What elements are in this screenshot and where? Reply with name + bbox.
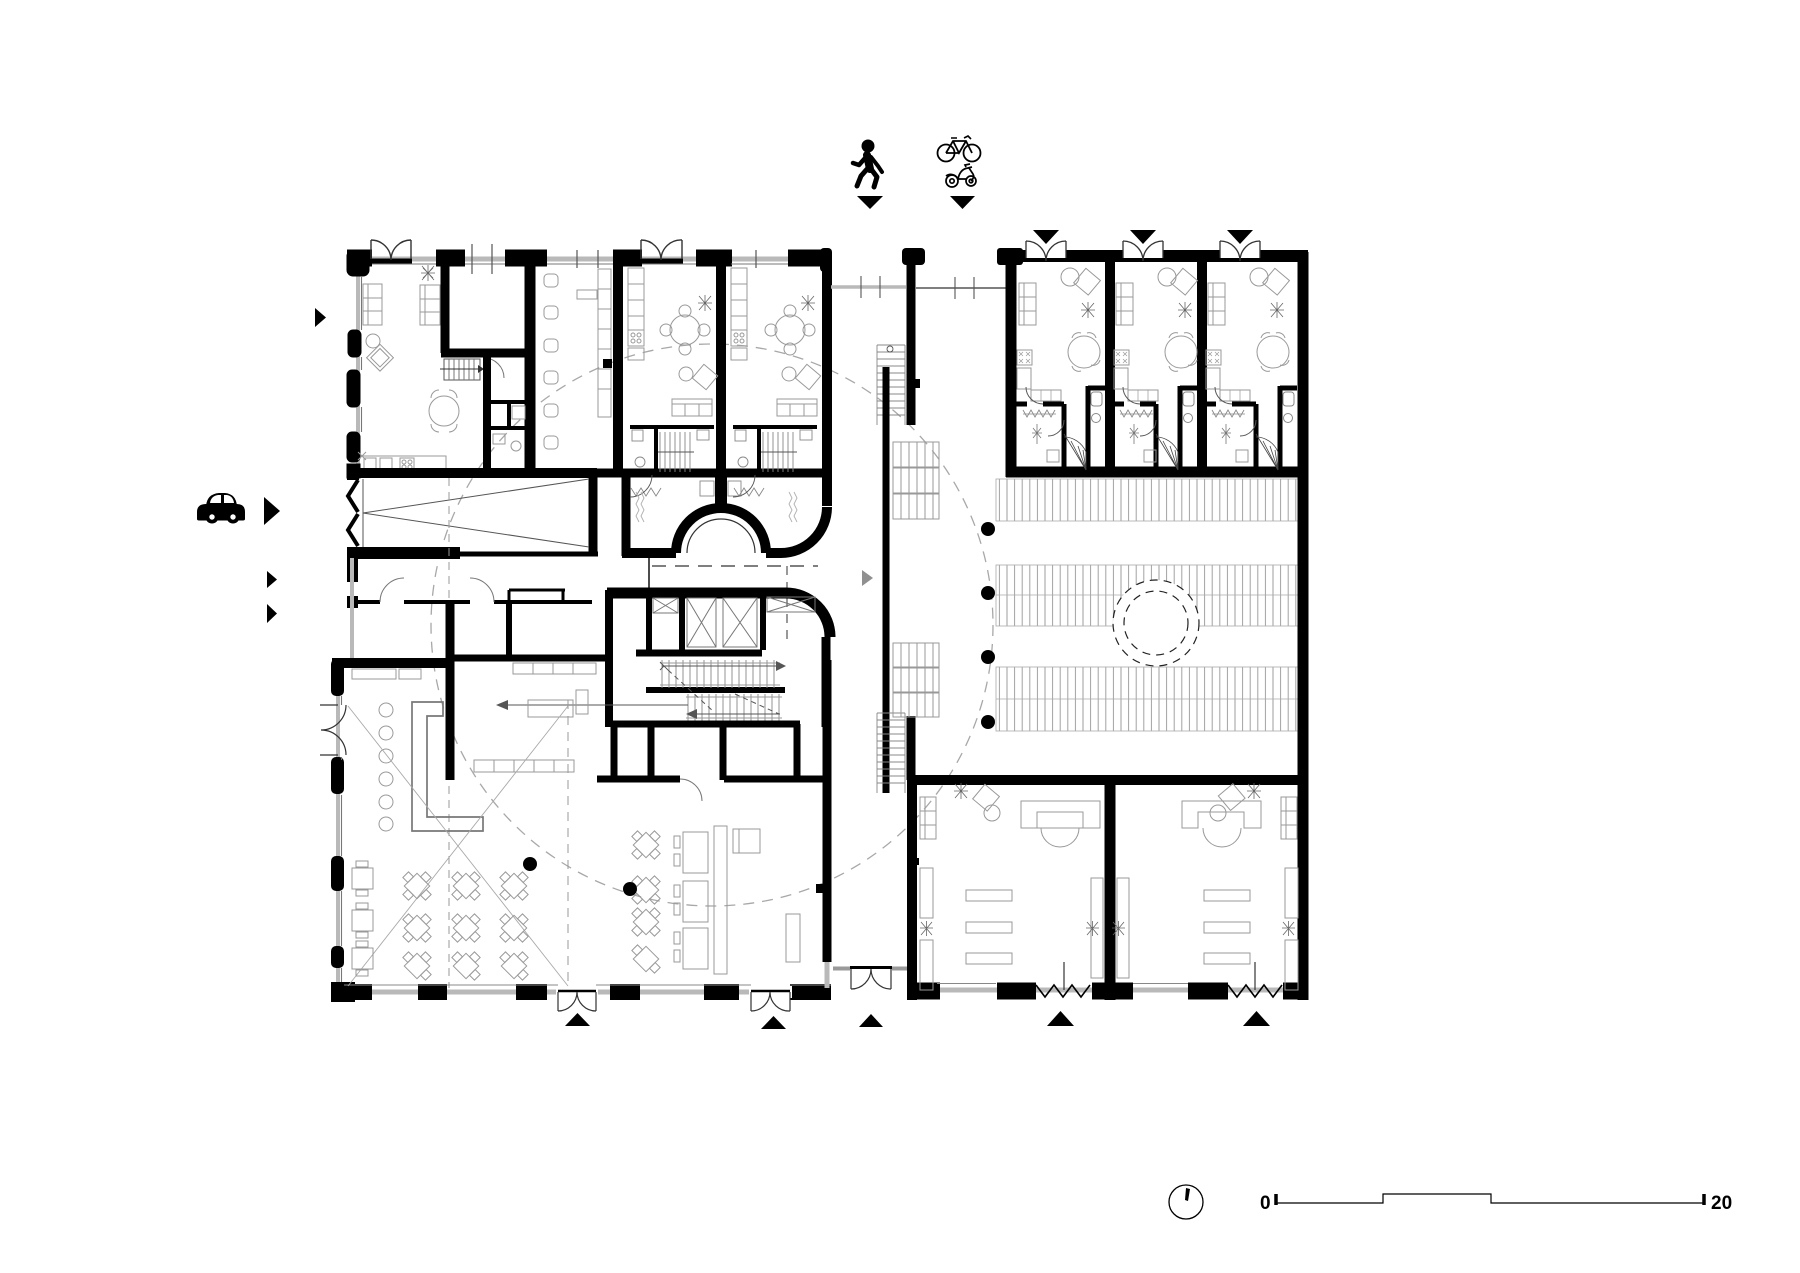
svg-text:20: 20 [1711, 1193, 1732, 1214]
svg-text:0: 0 [1260, 1193, 1271, 1214]
